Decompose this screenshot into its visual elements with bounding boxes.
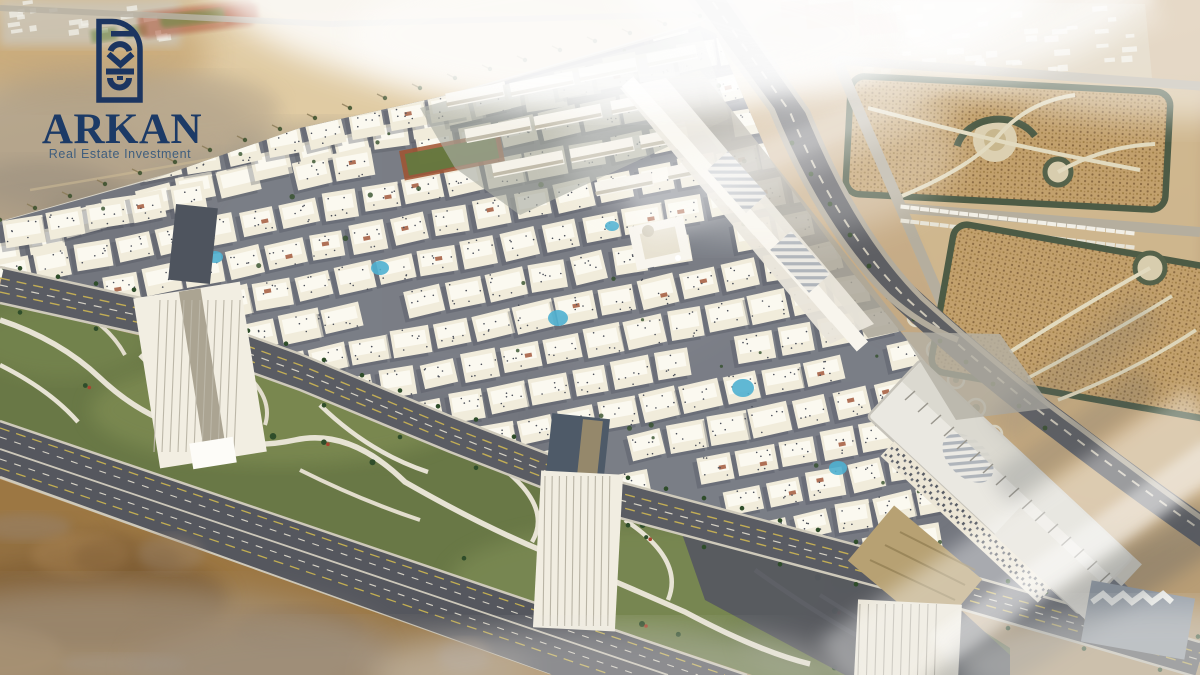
svg-text:ARKAN: ARKAN [42,106,202,153]
svg-text:Real Estate Investment: Real Estate Investment [49,147,191,161]
